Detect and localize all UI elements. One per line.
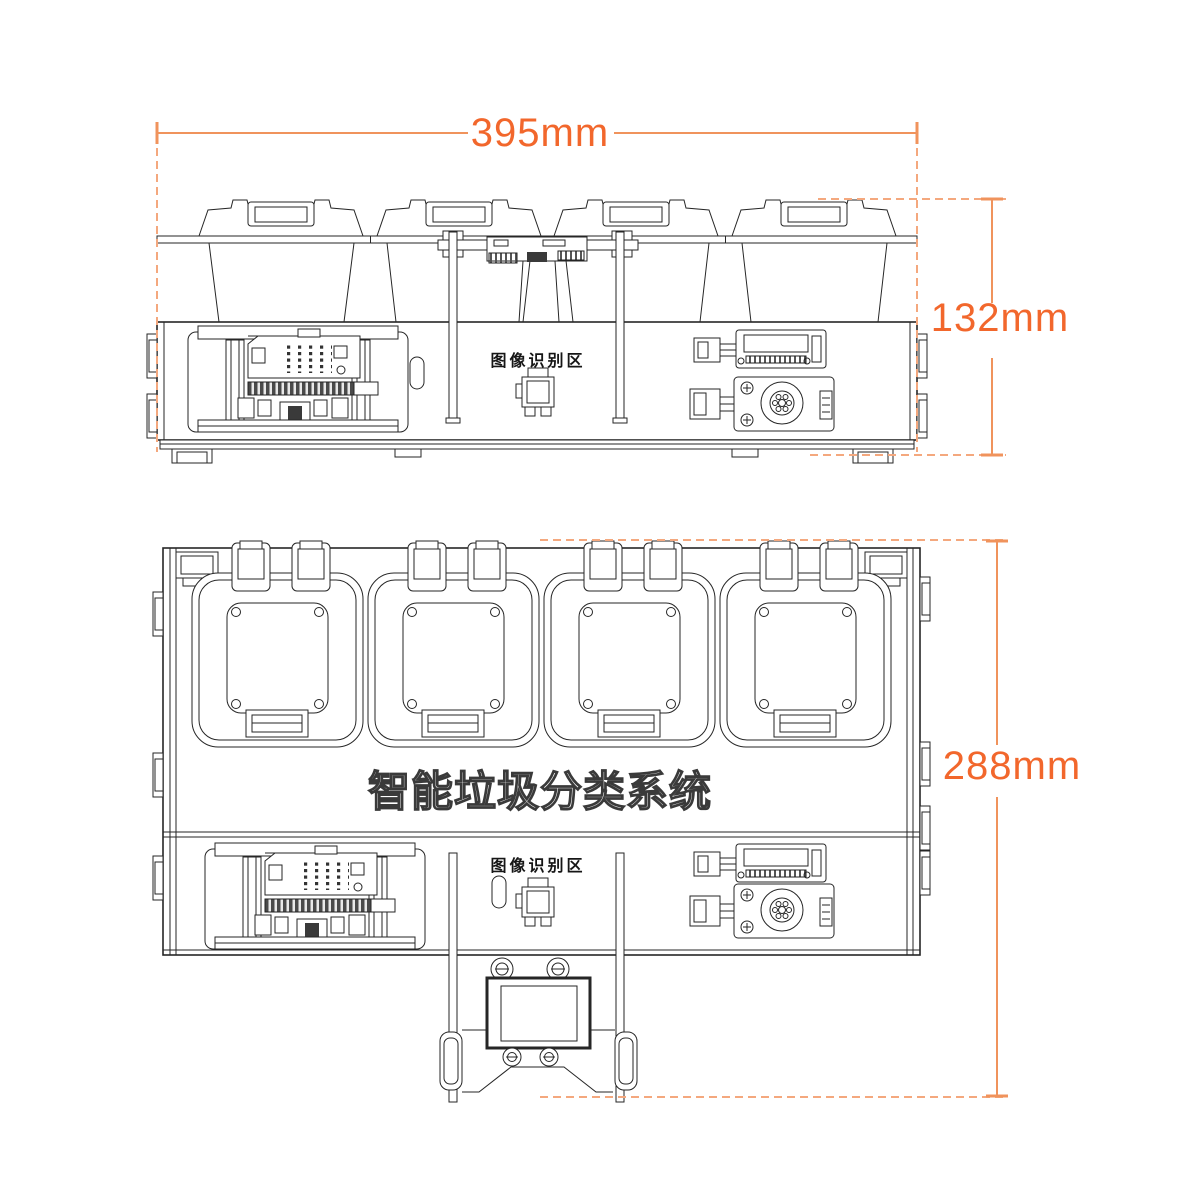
- front-recognition-label: 图像识别区: [490, 351, 585, 370]
- chute-rod-right: [616, 232, 624, 420]
- chute-funnel: [519, 261, 559, 322]
- depth-dimension-label: 288mm: [943, 744, 1081, 788]
- top-left-edge-tab: [153, 856, 163, 900]
- top-view: 智能垃圾分类系统 图像识别区: [153, 541, 930, 1102]
- front-bin-lid-3: [554, 200, 718, 236]
- front-right-foot: [853, 449, 893, 463]
- top-right-edge-tab: [920, 806, 930, 850]
- chute-rod-left: [449, 232, 457, 420]
- dimension-drawing-canvas: 图像识别区: [0, 0, 1200, 1200]
- top-right-edge-tab: [920, 577, 930, 621]
- front-microbit-board: [188, 326, 408, 432]
- height-dimension-label: 132mm: [931, 296, 1069, 340]
- camera-screen: [487, 978, 590, 1048]
- top-recognition-label: 图像识别区: [490, 856, 585, 875]
- top-left-edge-tab: [153, 592, 163, 636]
- front-left-edge-tab: [147, 394, 157, 438]
- front-right-edge-tab: [917, 334, 927, 378]
- top-slot-capsule: [492, 876, 506, 908]
- width-dimension-label: 395mm: [471, 111, 609, 155]
- top-right-edge-tab: [920, 742, 930, 786]
- camera-bracket-left-arm: [440, 1032, 462, 1090]
- garbage-sorter-dimension-drawing: 图像识别区: [0, 0, 1200, 1200]
- front-bin-lid-1: [199, 200, 363, 236]
- top-right-edge-tab: [920, 851, 930, 895]
- camera-bracket-right-arm: [615, 1032, 637, 1090]
- top-left-edge-tab: [153, 753, 163, 797]
- front-slot-capsule: [410, 357, 424, 389]
- camera-module: [440, 958, 637, 1092]
- front-view: 图像识别区: [147, 200, 927, 463]
- front-right-edge-tab: [917, 394, 927, 438]
- front-left-foot: [172, 449, 212, 463]
- front-bin-lid-4: [732, 200, 896, 236]
- system-title-label: 智能垃圾分类系统: [368, 768, 712, 815]
- top-microbit-board: [205, 843, 425, 949]
- front-left-edge-tab: [147, 334, 157, 378]
